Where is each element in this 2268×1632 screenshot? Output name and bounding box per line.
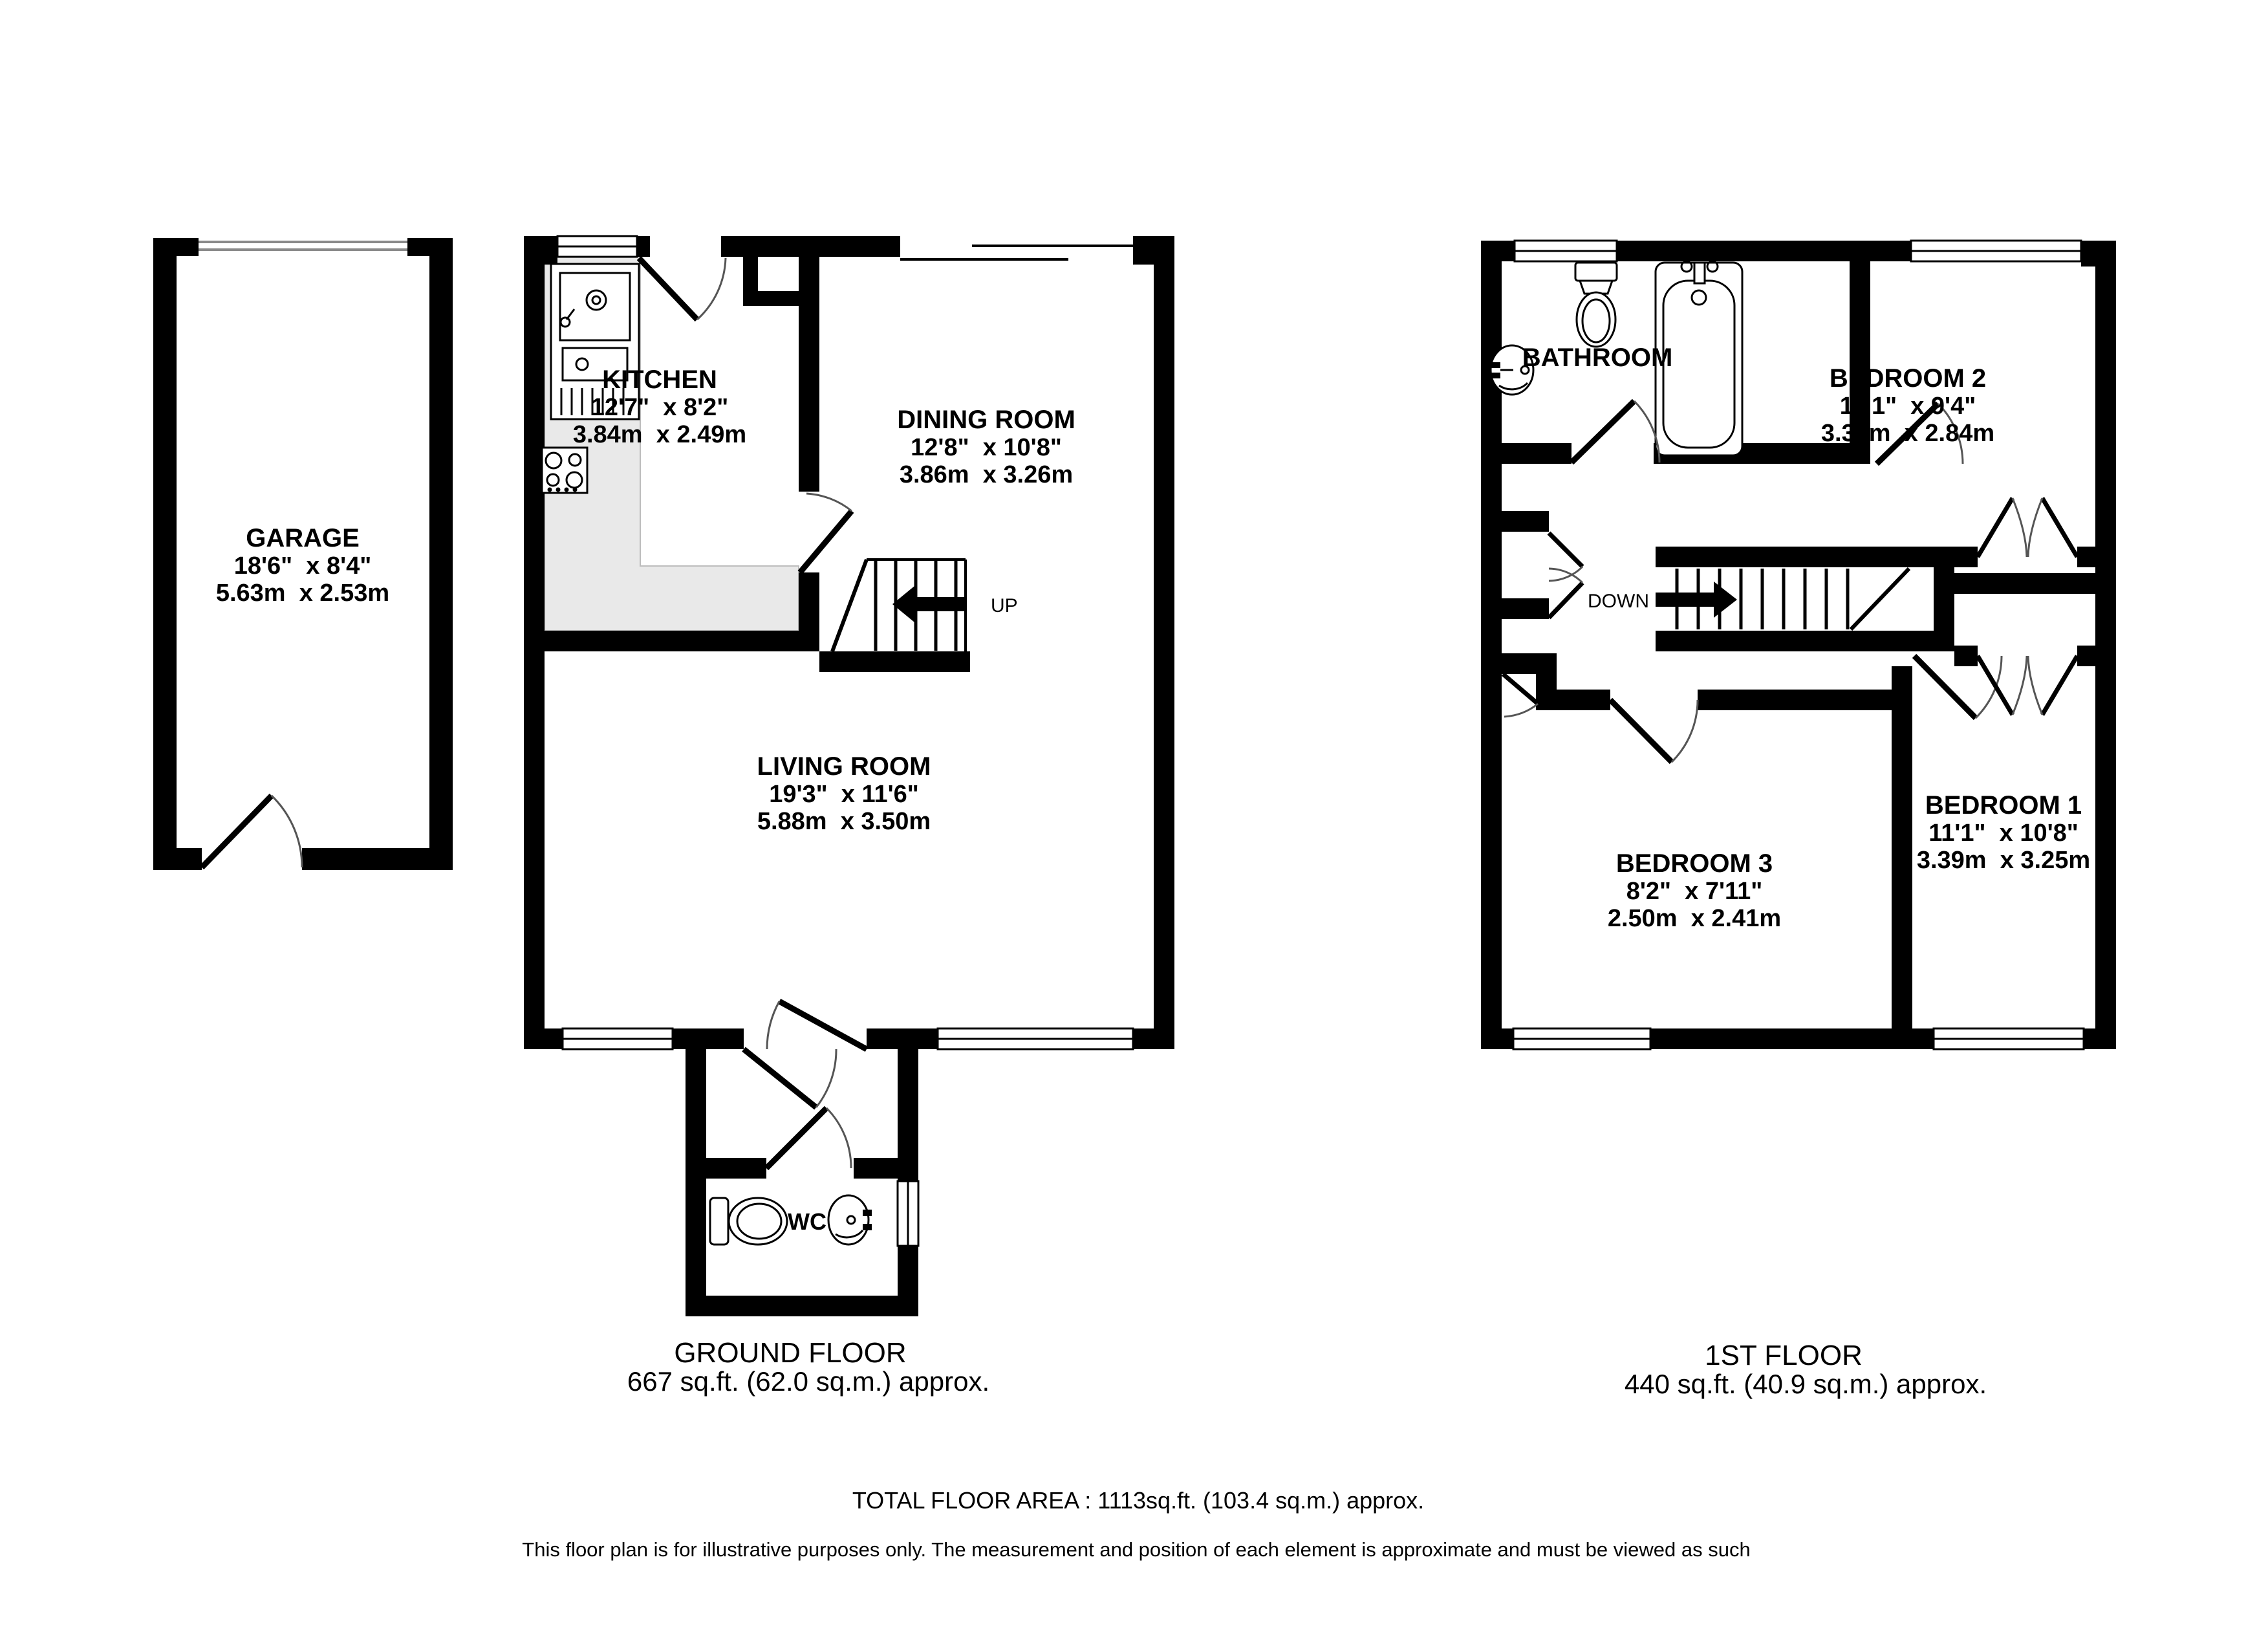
dining-room-size-imperial: 12'8" x 10'8" bbox=[911, 434, 1062, 461]
stairs-down-arrow bbox=[1656, 582, 1737, 618]
bedroom-2-size-imperial: 11'1" x 9'4" bbox=[1840, 393, 1976, 420]
toilet bbox=[710, 1198, 787, 1245]
dining-hall-door bbox=[800, 494, 852, 572]
floor-plan-canvas: GARAGE 18'6" x 8'4" 5.63m x 2.53m bbox=[0, 0, 2268, 1632]
dining-room-label: DINING ROOM bbox=[897, 406, 1075, 434]
garage-size-metric: 5.63m x 2.53m bbox=[216, 580, 389, 607]
rear-door bbox=[639, 258, 726, 320]
kitchen-label: KITCHEN bbox=[602, 365, 717, 394]
bedroom-1-label: BEDROOM 1 bbox=[1925, 791, 2082, 820]
ground-floor-heading: GROUND FLOOR bbox=[674, 1337, 906, 1369]
garage: GARAGE 18'6" x 8'4" 5.63m x 2.53m bbox=[153, 238, 453, 870]
bedroom-2-window bbox=[1911, 241, 2081, 261]
hand-basin bbox=[828, 1195, 872, 1245]
entrance-vestibule: WC bbox=[686, 1049, 918, 1316]
dining-room-size-metric: 3.86m x 3.26m bbox=[900, 461, 1073, 488]
bathroom-label: BATHROOM bbox=[1522, 343, 1673, 372]
wc-label: WC bbox=[788, 1208, 826, 1235]
wc-window bbox=[898, 1181, 918, 1246]
bedroom-3-label: BEDROOM 3 bbox=[1616, 849, 1773, 878]
bedroom-3-size-imperial: 8'2" x 7'11" bbox=[1626, 878, 1762, 905]
bathroom-door bbox=[1571, 401, 1659, 462]
living-room-door bbox=[744, 1001, 867, 1107]
kitchen-window bbox=[557, 236, 637, 257]
stairs-up bbox=[832, 560, 966, 651]
living-room-window-right bbox=[938, 1028, 1133, 1049]
bathroom-window bbox=[1515, 241, 1617, 261]
total-floor-area: TOTAL FLOOR AREA : 1113sq.ft. (103.4 sq.… bbox=[852, 1487, 1424, 1514]
living-room-size-imperial: 19'3" x 11'6" bbox=[769, 781, 919, 808]
bedroom-3-door bbox=[1610, 700, 1698, 762]
kitchen-size-imperial: 12'7" x 8'2" bbox=[591, 394, 729, 421]
captions: GROUND FLOOR 667 sq.ft. (62.0 sq.m.) app… bbox=[522, 1337, 1987, 1561]
bedroom-1-size-imperial: 11'1" x 10'8" bbox=[1928, 820, 2079, 847]
stairs-down bbox=[1656, 569, 1909, 629]
stairs-up-label: UP bbox=[991, 595, 1018, 616]
garage-label: GARAGE bbox=[246, 524, 360, 552]
garage-size-imperial: 18'6" x 8'4" bbox=[234, 552, 372, 580]
first-floor-plan: DOWN BATHROOM BEDROOM 2 11'1" x 9'4" 3.3… bbox=[1481, 241, 2116, 1049]
bathroom-toilet bbox=[1575, 263, 1617, 347]
stairs-down-label: DOWN bbox=[1588, 591, 1649, 612]
bedroom-3-size-metric: 2.50m x 2.41m bbox=[1608, 905, 1781, 932]
bedroom-2-label: BEDROOM 2 bbox=[1830, 364, 1986, 393]
kitchen-size-metric: 3.84m x 2.49m bbox=[573, 421, 746, 448]
first-floor-area: 440 sq.ft. (40.9 sq.m.) approx. bbox=[1625, 1369, 1987, 1399]
living-room-label: LIVING ROOM bbox=[757, 752, 931, 781]
garage-door bbox=[202, 796, 302, 867]
bedroom-1-size-metric: 3.39m x 3.25m bbox=[1917, 847, 2090, 874]
wc-door bbox=[766, 1108, 851, 1168]
bedroom-1-window bbox=[1934, 1028, 2084, 1049]
living-room-window-left bbox=[563, 1028, 673, 1049]
kitchen-hob bbox=[542, 448, 587, 493]
living-room-size-metric: 5.88m x 3.50m bbox=[757, 808, 931, 835]
bedroom-2-wardrobe-doors bbox=[1978, 498, 2077, 557]
disclaimer: This floor plan is for illustrative purp… bbox=[522, 1538, 1750, 1561]
first-floor-heading: 1ST FLOOR bbox=[1705, 1340, 1863, 1371]
bedroom-3-window bbox=[1513, 1028, 1650, 1049]
ground-floor-area: 667 sq.ft. (62.0 sq.m.) approx. bbox=[627, 1366, 989, 1397]
ground-floor-plan: UP KITCHEN 12'7" x 8'2" 3.84m x 2.49m DI… bbox=[524, 236, 1174, 1107]
bedroom-1-wardrobe-doors bbox=[1978, 656, 2077, 715]
bedroom-2-size-metric: 3.39m x 2.84m bbox=[1821, 420, 1994, 447]
